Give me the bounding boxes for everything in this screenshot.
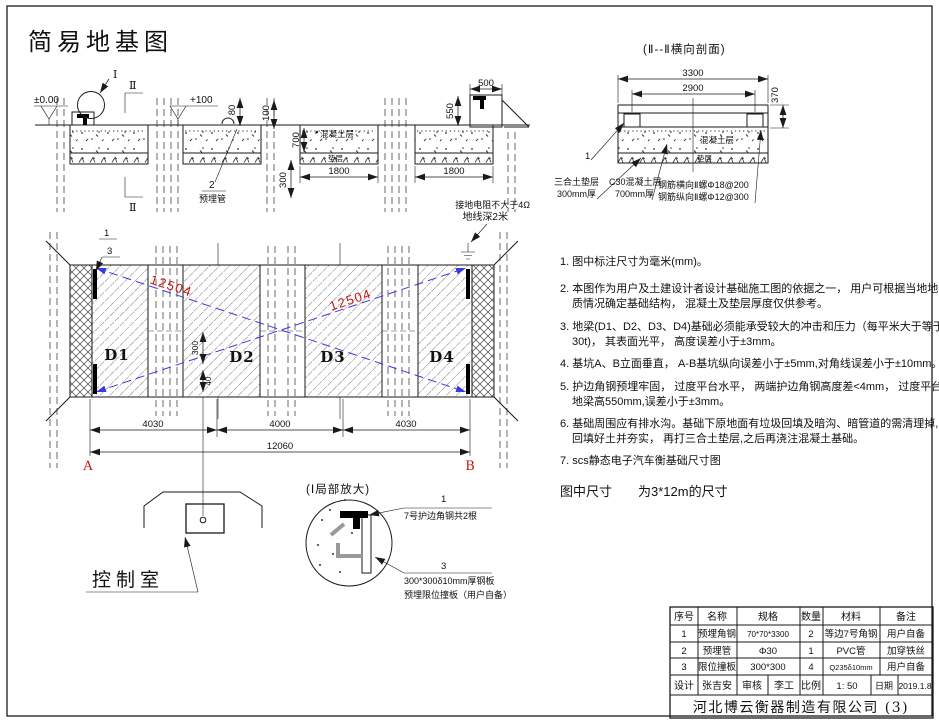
cushion-fill — [70, 153, 148, 164]
detail-view-I: (Ⅰ局部放大) 1 7号护边角钢共2根 3 300*300δ10mm厚钢板 预埋… — [306, 482, 512, 600]
dim-300: 300 — [278, 172, 289, 188]
control-room-leader — [185, 537, 198, 592]
note-5-line-1: 5. 护边角钢预埋牢固， 过度平台水平， 两端护边角钢高度差<4mm， 过度平台… — [560, 379, 939, 393]
cushion-fill — [183, 153, 261, 164]
date-label: 日期 — [875, 681, 893, 691]
cell-material: Q235δ10mm — [829, 663, 872, 672]
corner-label-A: A — [82, 459, 93, 474]
callout-1: 1 — [585, 151, 590, 162]
dim-700: 700 — [291, 132, 302, 148]
limit-plate — [362, 515, 371, 573]
ground-symbol — [461, 243, 475, 259]
corner-angle-bar — [93, 364, 97, 394]
dim-1800b: 1800 — [443, 166, 464, 177]
cell-remark: 加穿铁丝 — [887, 645, 925, 657]
pit-4 — [415, 125, 493, 164]
size-note: 图中尺寸 为3*12m的尺寸 — [560, 484, 728, 499]
th-remark: 备注 — [896, 610, 916, 623]
pit-1 — [70, 125, 148, 164]
note-6-line-2: 回填好土并夯实， 再打三合土垫层,之后再浇注混凝土基础。 — [572, 431, 864, 445]
dim-550: 550 — [445, 103, 456, 119]
table-footer-row: 设计 张吉安 审核 李工 比例 1: 50 日期 2019.1.8 — [674, 679, 932, 692]
dim-v300: 300 — [190, 341, 200, 355]
cell-spec: Φ30 — [759, 646, 777, 657]
dim-v40: 40 — [204, 376, 213, 385]
ext-370 — [770, 105, 789, 128]
rebar-label-2: 钢筋纵向Ⅱ螺Φ12@300 — [658, 191, 749, 202]
dim-80: 80 — [227, 105, 238, 116]
title-block-table: 序号 名称 规格 数量 材料 备注 1 预埋角钢 70*70*3300 2 等边… — [670, 607, 933, 718]
company-name: 河北博云衡器制造有限公司 (3) — [693, 699, 909, 716]
note-3-line-2: 30t)， 其表面光平， 高度误差小于±3mm。 — [572, 334, 782, 348]
dim-12060: 12060 — [267, 441, 293, 452]
dim-4000: 4000 — [269, 419, 290, 430]
cell-material: PVC管 — [836, 645, 865, 657]
left-section-view: Ⅰ Ⅱ Ⅱ ±0.00 +100 80 100 700 300 1800 180… — [34, 68, 530, 214]
end-wall-left — [70, 265, 92, 397]
cell-name: 限位撞板 — [698, 661, 737, 673]
th-index: 序号 — [674, 610, 694, 623]
embedded-angle-left — [624, 114, 640, 127]
table-row: 3 限位撞板 300*300 4 Q235δ10mm 用户自备 — [681, 661, 925, 673]
beam-label-D3: D3 — [320, 348, 345, 366]
dim-2900: 2900 — [682, 83, 703, 94]
scale-label: 比例 — [801, 679, 821, 692]
plan-callout-3: 3 — [107, 246, 112, 257]
beam-D4-hatch — [418, 265, 472, 397]
th-spec: 规格 — [758, 610, 778, 623]
th-name: 名称 — [707, 610, 727, 623]
cell-index: 2 — [681, 646, 686, 657]
date-value: 2019.1.8 — [898, 681, 931, 691]
corner-angle-bar — [466, 364, 470, 394]
dim-500: 500 — [478, 78, 494, 89]
detail-callout-1-leader — [369, 508, 404, 515]
ground-leader — [471, 224, 487, 242]
detail-title: (Ⅰ局部放大) — [306, 482, 370, 496]
ground-note-1: 接地电阻不大于4Ω — [455, 199, 530, 210]
cell-name: 预埋角钢 — [698, 628, 736, 640]
cell-index: 1 — [681, 629, 686, 640]
section-mark-top: Ⅱ — [129, 79, 136, 92]
dim-1800a: 1800 — [328, 166, 349, 177]
plan-callout-1: 1 — [104, 228, 109, 239]
callout-2: 2 — [209, 180, 215, 191]
beam-label-D4: D4 — [429, 348, 454, 366]
cell-spec: 70*70*3300 — [747, 630, 789, 639]
control-room-label: 控制室 — [92, 569, 164, 591]
drawing-sheet: 简易地基图 — [0, 0, 939, 722]
table-row: 2 预埋管 Φ30 1 PVC管 加穿铁丝 — [681, 645, 925, 657]
pit-2 — [183, 125, 261, 164]
cell-remark: 用户自备 — [887, 628, 926, 640]
detail-callout-1-label: 7号护边角钢共2根 — [404, 510, 477, 521]
dim-100: 100 — [261, 105, 272, 121]
edge-angle-steel — [473, 96, 486, 100]
concrete-layer-label: 混凝土层 — [700, 135, 734, 145]
elev-plus-symbol — [170, 106, 218, 125]
beam-label-D1: D1 — [104, 346, 129, 364]
cell-material: 等边7号角钢 — [825, 628, 878, 640]
dim-3300: 3300 — [682, 68, 703, 79]
review-label: 审核 — [742, 679, 762, 692]
callout-2-label: 预埋管 — [199, 193, 226, 204]
note-2-line-1: 2. 本图作为用户及土建设计者设计基础施工图的依据之一， 用户可根据当地地 — [560, 281, 938, 295]
pad-label-1: 三合土垫层 — [554, 176, 599, 187]
cell-name: 预埋管 — [703, 645, 732, 657]
beam-label-D2: D2 — [229, 348, 254, 366]
design-label: 设计 — [674, 679, 694, 692]
note-6-line-1: 6. 基础周围应有排水沟。基础下原地面有垃圾回填及暗沟、暗管道的需清理掉, — [560, 416, 938, 430]
note-4: 4. 基坑A、B立面垂直， A-B基坑纵向误差小于±5mm,对角线误差小于±10… — [560, 356, 939, 370]
note-2-line-2: 质情况确定基础结构， 混凝土及垫层厚度仅供参考。 — [572, 296, 828, 310]
corner-label-B: B — [465, 459, 475, 474]
detail-leader — [100, 79, 109, 93]
section-mark-bottom: Ⅱ — [129, 201, 136, 214]
label-dot — [316, 131, 318, 133]
edge-angle-steel-leg — [480, 100, 484, 109]
c30-label-1: C30混凝土层 — [609, 176, 662, 187]
dim-4030-left: 4030 — [142, 419, 163, 430]
table-row: 1 预埋角钢 70*70*3300 2 等边7号角钢 用户自备 — [681, 628, 925, 640]
th-material: 材料 — [841, 610, 861, 623]
weld-mark — [331, 524, 344, 535]
detail-callout-3: 3 — [441, 561, 446, 572]
corner-angle-bar — [93, 269, 97, 299]
notes-block: 1. 图中标注尺寸为毫米(mm)。 2. 本图作为用户及土建设计者设计基础施工图… — [560, 254, 939, 499]
note-7: 7. scs静态电子汽车衡基础尺寸图 — [560, 453, 721, 467]
ramp-slope — [502, 100, 529, 127]
transverse-section-view: (Ⅱ--Ⅱ横向剖面) 混凝土层 垫层 3300 2900 370 1 三合土垫层… — [554, 42, 789, 203]
detail-callout-3-label-1: 300*300δ10mm厚钢板 — [404, 575, 495, 586]
cell-qty: 2 — [808, 629, 813, 640]
embedded-angle-right — [747, 114, 763, 127]
elev-plus-label: +100 — [190, 95, 213, 106]
rebar-label-1: 钢筋横向Ⅱ螺Φ18@200 — [658, 179, 749, 190]
edge-angle-steel-leg — [83, 118, 87, 125]
section-title: (Ⅱ--Ⅱ横向剖面) — [643, 42, 726, 56]
plan-view: 12504 12504 D1 D2 D3 D4 1 3 接地电阻不大于4Ω 地线… — [46, 199, 530, 516]
cell-qty: 1 — [808, 646, 813, 657]
cushion-fill — [415, 153, 493, 164]
cushion-layer-label: 垫层 — [697, 153, 712, 163]
angle-steel-leg — [353, 518, 360, 529]
foundation-drawing-canvas: 简易地基图 — [0, 0, 939, 722]
dim-4030-right: 4030 — [395, 419, 416, 430]
reviewer-name: 李工 — [774, 679, 794, 692]
detail-speckles — [317, 499, 353, 573]
detail-callout-3-leader — [375, 557, 404, 573]
cell-qty: 4 — [808, 662, 813, 673]
cell-remark: 用户自备 — [887, 661, 926, 673]
detail-callout-3-label-2: 预埋限位撞板（用户自备） — [404, 589, 512, 600]
elev-zero-symbol — [34, 106, 68, 125]
note-5-line-2: 地梁高550mm,误差小于±3mm。 — [572, 394, 730, 408]
c30-label-2: 700mm厚 — [615, 189, 654, 199]
elev-zero-label: ±0.00 — [34, 95, 59, 106]
designer-name: 张吉安 — [702, 679, 732, 692]
beam-D3-hatch — [305, 265, 382, 397]
end-wall-right — [472, 265, 494, 397]
th-qty: 数量 — [801, 610, 821, 623]
cell-index: 3 — [681, 662, 686, 673]
angle-steel-flange — [340, 511, 368, 518]
pad-label-2: 300mm厚 — [557, 189, 596, 199]
control-room: 控制室 — [86, 492, 262, 592]
detail-mark-I: Ⅰ — [113, 68, 117, 81]
page-title: 简易地基图 — [28, 28, 173, 56]
lower-angle — [338, 543, 362, 556]
ground-note-2: 地线深2米 — [462, 210, 508, 223]
concrete-layer-label: 混凝土层 — [320, 129, 354, 139]
conduit-terminal — [200, 517, 206, 523]
detail-circle-I — [78, 92, 105, 119]
detail-callout-1: 1 — [441, 494, 446, 505]
dim-370: 370 — [770, 87, 781, 103]
cushion-layer-label: 垫层 — [328, 153, 343, 163]
note-3-line-1: 3. 地梁(D1、D2、D3、D4)基础必须能承受较大的冲击和压力（每平米大于等… — [560, 319, 939, 333]
note-1: 1. 图中标注尺寸为毫米(mm)。 — [560, 254, 708, 268]
embedded-pipe — [222, 118, 234, 124]
scale-value: 1: 50 — [836, 681, 857, 692]
cell-spec: 300*300 — [750, 662, 785, 673]
corner-angle-bar — [466, 269, 470, 299]
